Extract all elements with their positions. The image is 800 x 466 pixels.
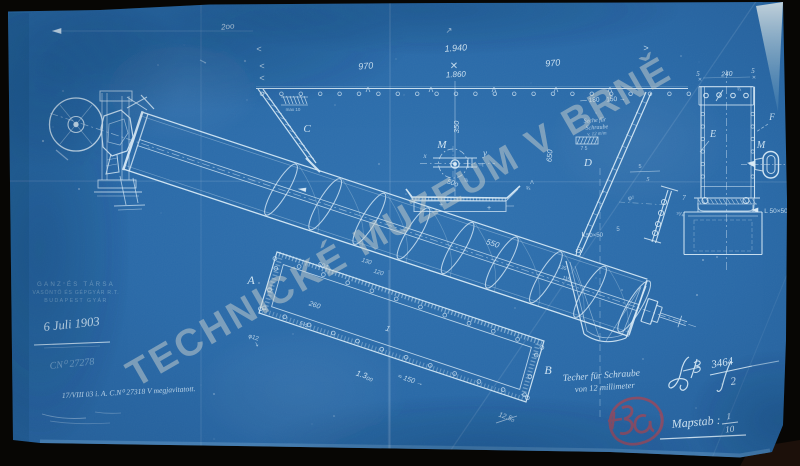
svg-text:Λ: Λ (492, 87, 497, 94)
svg-text:B: B (575, 247, 582, 259)
svg-text:L 50×50: L 50×50 (764, 208, 788, 215)
svg-text:✕: ✕ (450, 61, 458, 72)
svg-text:Λ: Λ (366, 87, 371, 94)
svg-text:¹⁰⁄₄: ¹⁰⁄₄ (676, 211, 684, 218)
svg-text:C: C (303, 123, 311, 135)
svg-text:Λ: Λ (429, 87, 434, 94)
svg-text:✕: ✕ (698, 77, 702, 83)
svg-text:max 10: max 10 (286, 107, 301, 112)
svg-text:F: F (768, 112, 775, 122)
svg-text:Λ: Λ (554, 87, 559, 94)
svg-text:+: + (487, 205, 491, 212)
svg-text:M: M (436, 139, 447, 151)
svg-text:>: > (643, 43, 648, 53)
svg-text:5: 5 (751, 67, 755, 75)
svg-text:970: 970 (545, 57, 561, 68)
svg-text:350: 350 (452, 120, 461, 133)
svg-text:✕: ✕ (752, 75, 756, 81)
svg-text:¾: ¾ (526, 186, 531, 192)
svg-text:B: B (544, 363, 552, 377)
svg-text:Λ: Λ (530, 180, 534, 186)
svg-text:M: M (756, 140, 766, 151)
